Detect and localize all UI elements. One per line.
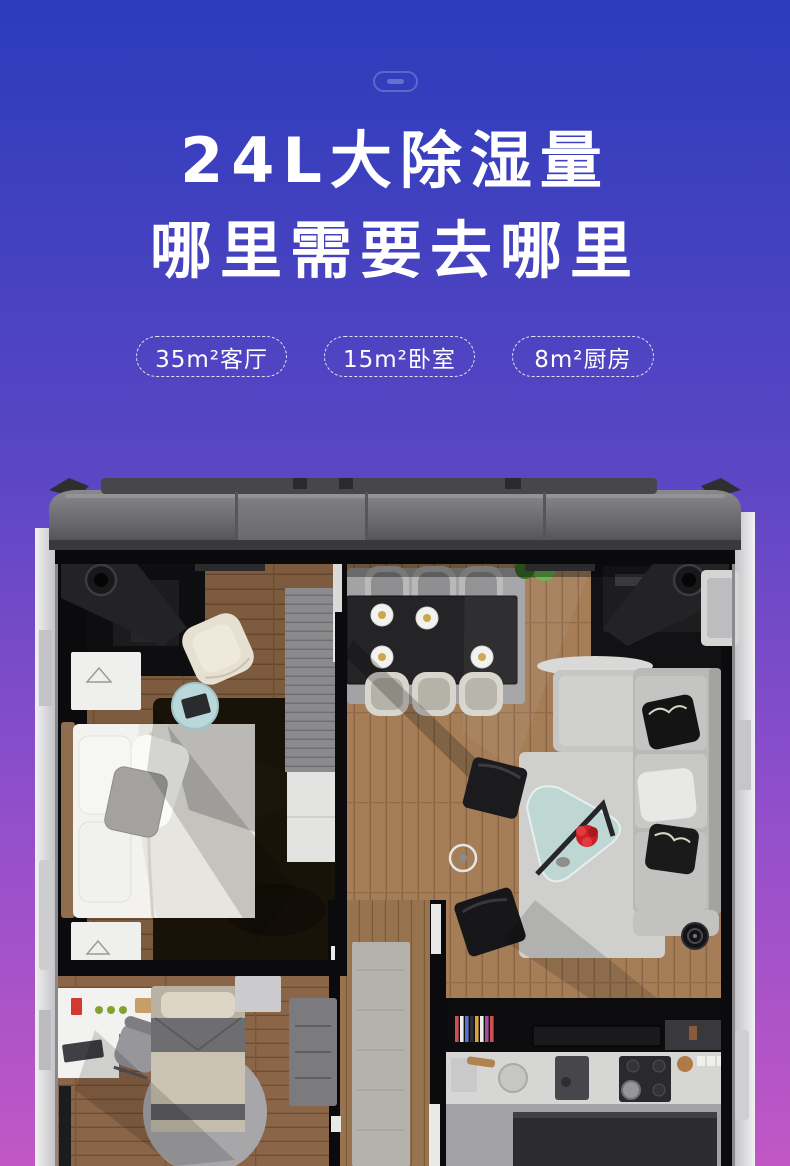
area-badges: 35m²客厅 15m²卧室 8m²厨房 [0,336,790,377]
round-side-table [172,683,218,729]
casing-left-rail [35,528,58,1166]
capsule-bar [387,79,404,84]
kitchen [446,998,725,1166]
sink [499,1064,527,1092]
slatted-wardrobe [285,588,339,772]
badge-bedroom: 15m²卧室 [324,336,475,377]
second-bedroom [55,975,337,1166]
hero-section: 24L大除湿量 哪里需要去哪里 35m²客厅 15m²卧室 8m²厨房 [0,0,790,377]
floorplan-render [35,470,755,1166]
speaker-left [86,565,116,595]
nightstand-top [71,652,141,710]
gas-hob [619,1056,671,1102]
page-title: 24L大除湿量 哪里需要去哪里 [0,116,790,296]
basin-appliance [555,1056,589,1100]
badge-living-room: 35m²客厅 [136,336,287,377]
badge-kitchen: 8m²厨房 [512,336,654,377]
red-flower [576,825,598,847]
title-line-2: 哪里需要去哪里 [0,206,790,296]
speaker-right [674,565,704,595]
promo-page: 24L大除湿量 哪里需要去哪里 35m²客厅 15m²卧室 8m²厨房 [0,0,790,1166]
kitchen-counter [446,1052,725,1104]
capsule-outline-icon [373,71,418,92]
floor-speaker-puck [682,923,708,949]
casing-top-cap [49,478,741,564]
kitchen-island [513,1112,717,1166]
tv-wall [446,998,725,1052]
title-line-1: 24L大除湿量 [0,116,790,206]
bedside-cabinet [235,976,281,1012]
